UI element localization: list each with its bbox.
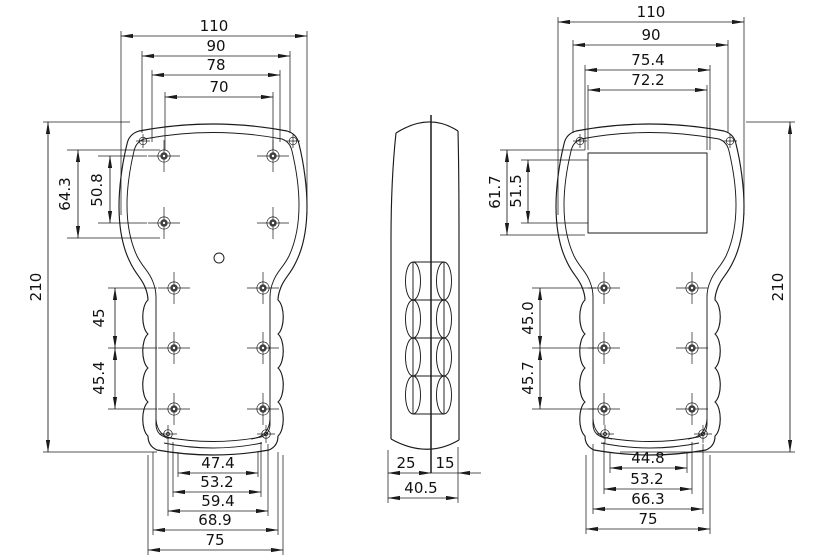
front-bottom-dimensions: 44.8 53.2 66.3 75 [586,442,710,534]
back-view-body [119,124,307,455]
dim-label-front-51-5: 51.5 [507,174,525,207]
dim-label-side-40-5: 40.5 [404,479,437,497]
dim-label-back-78: 78 [206,56,225,74]
dim-label-front-72-2: 72.2 [631,71,664,89]
center-hole [214,253,224,263]
side-view: 25 15 40.5 [388,115,481,503]
dim-label-side-15: 15 [435,454,454,472]
dim-label-back-53-2: 53.2 [200,473,233,491]
dim-label-front-45-0: 45.0 [519,301,537,334]
dim-label-back-47-4: 47.4 [201,454,234,472]
dim-label-side-25: 25 [396,454,415,472]
dim-label-front-45-7: 45.7 [519,361,537,394]
dim-label-back-59-4: 59.4 [201,492,234,510]
enclosure-shell-outline [556,124,744,455]
dim-label-back-70: 70 [209,78,228,96]
dim-label-front-53-2: 53.2 [630,470,663,488]
back-left-dimensions: 210 64.3 50.8 45 45.4 [27,122,160,452]
front-view-body [556,124,744,455]
dim-label-back-45: 45 [90,308,108,327]
side-bottom-dimensions: 25 15 40.5 [388,447,481,503]
back-top-dimensions: 110 90 78 70 [121,17,307,215]
back-bottom-dimensions: 47.4 53.2 59.4 68.9 75 [148,442,283,555]
dim-label-front-75: 75 [638,510,657,528]
three-view-technical-drawing: 110 90 78 70 210 64.3 50.8 45 45.4 [0,0,825,556]
back-view: 110 90 78 70 210 64.3 50.8 45 45.4 [27,17,307,555]
dim-label-back-75: 75 [205,531,224,549]
front-right-dimensions: 210 [620,122,795,452]
dim-label-back-210: 210 [27,273,45,302]
dim-label-back-64-3: 64.3 [56,177,74,210]
dim-label-back-90: 90 [206,37,225,55]
dim-label-front-90: 90 [641,26,660,44]
dim-label-back-110: 110 [200,17,229,35]
lcd-window [588,153,707,233]
dim-label-front-210: 210 [769,273,787,302]
front-top-dimensions: 110 90 75.4 72.2 [558,3,744,215]
drawing-canvas: 110 90 78 70 210 64.3 50.8 45 45.4 [0,0,825,556]
front-left-dimensions: 61.7 51.5 45.0 45.7 [486,150,596,409]
dim-label-front-110: 110 [637,3,666,21]
front-view: 110 90 75.4 72.2 61.7 51.5 45.0 45.7 [486,3,795,534]
dim-label-back-45-4: 45.4 [90,361,108,394]
dim-label-front-61-7: 61.7 [486,175,504,208]
dim-label-back-68-9: 68.9 [198,511,231,529]
enclosure-shell-outline [119,124,307,455]
dim-label-back-50-8: 50.8 [88,173,106,206]
dim-label-front-66-3: 66.3 [631,490,664,508]
dim-label-front-44-8: 44.8 [631,449,664,467]
side-view-body [391,115,459,473]
dim-label-front-75-4: 75.4 [631,51,664,69]
